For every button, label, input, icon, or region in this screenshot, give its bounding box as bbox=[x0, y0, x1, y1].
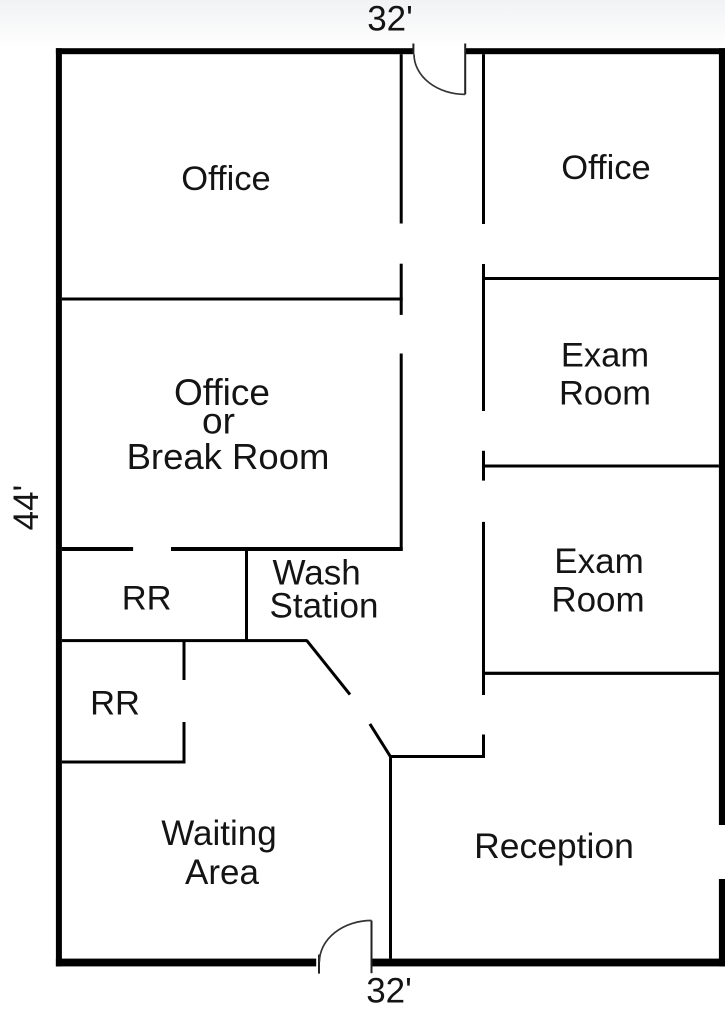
svg-text:RR: RR bbox=[90, 685, 140, 723]
svg-text:32': 32' bbox=[366, 972, 412, 1011]
svg-text:Office: Office bbox=[181, 160, 270, 198]
svg-text:Station: Station bbox=[270, 587, 379, 626]
svg-text:32': 32' bbox=[367, 0, 413, 39]
svg-text:Waiting: Waiting bbox=[161, 814, 276, 853]
svg-text:Area: Area bbox=[185, 853, 259, 892]
svg-text:Break Room: Break Room bbox=[127, 436, 330, 477]
svg-text:44': 44' bbox=[7, 485, 46, 531]
svg-text:Exam: Exam bbox=[561, 337, 649, 375]
svg-text:Reception: Reception bbox=[474, 826, 634, 866]
svg-text:Exam: Exam bbox=[554, 542, 643, 581]
svg-text:Room: Room bbox=[551, 581, 644, 620]
svg-text:RR: RR bbox=[122, 580, 172, 618]
svg-text:Office: Office bbox=[561, 149, 650, 187]
svg-text:Room: Room bbox=[559, 375, 651, 413]
